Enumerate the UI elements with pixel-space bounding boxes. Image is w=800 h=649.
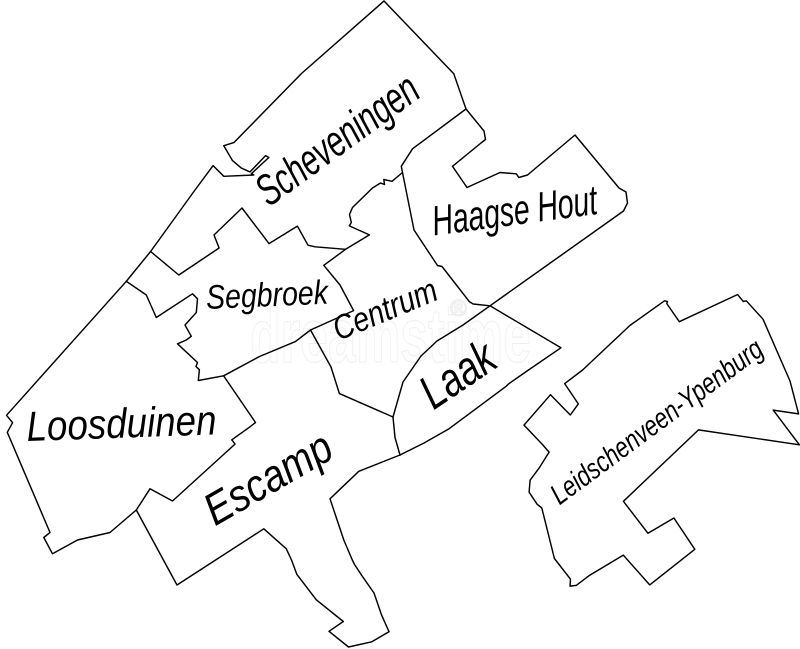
- svg-text:Loosduinen: Loosduinen: [26, 396, 218, 450]
- svg-text:®: ®: [450, 295, 467, 321]
- svg-text:Segbroek: Segbroek: [205, 274, 330, 317]
